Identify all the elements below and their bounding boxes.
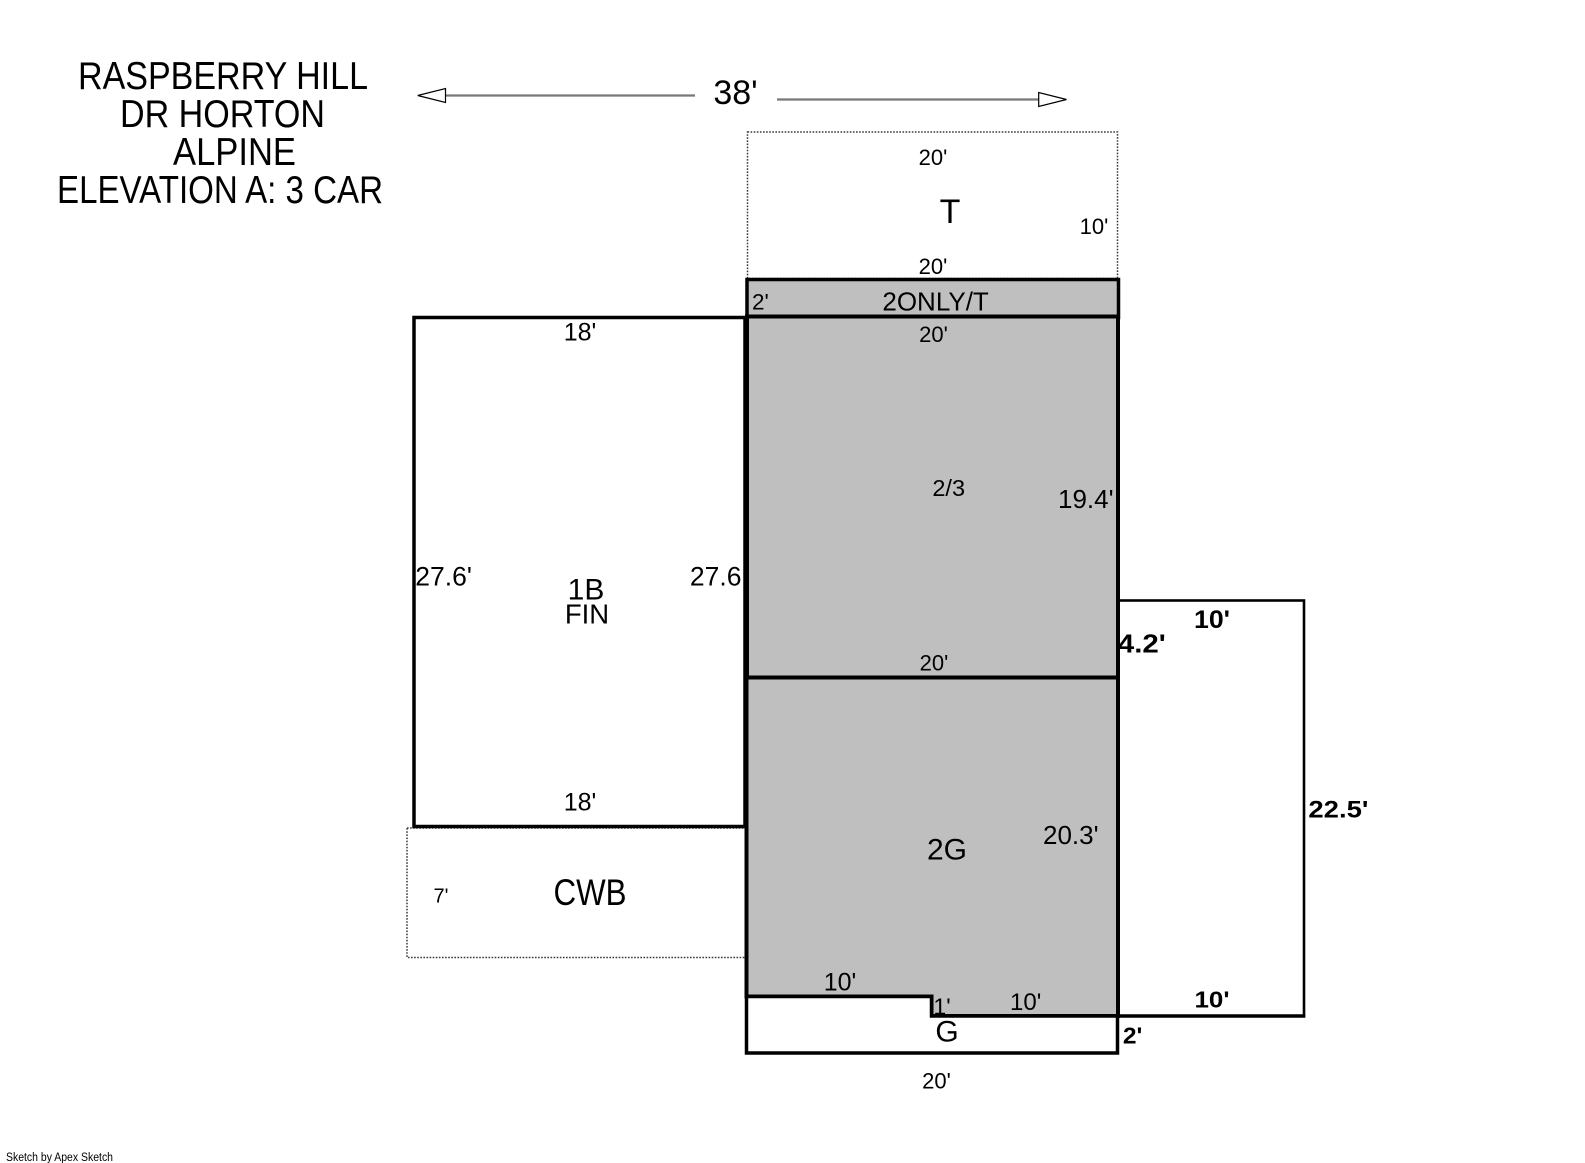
svg-text:27.6: 27.6 bbox=[690, 562, 742, 592]
svg-text:20.3': 20.3' bbox=[1043, 820, 1099, 850]
svg-text:2': 2' bbox=[1123, 1023, 1143, 1049]
svg-text:G: G bbox=[935, 1016, 958, 1049]
svg-text:18': 18' bbox=[564, 319, 597, 347]
svg-text:10': 10' bbox=[1194, 606, 1230, 634]
svg-text:ELEVATION A: 3 CAR: ELEVATION A: 3 CAR bbox=[57, 169, 383, 212]
svg-text:38': 38' bbox=[713, 74, 757, 112]
svg-text:4.2': 4.2' bbox=[1118, 629, 1166, 659]
svg-text:2': 2' bbox=[752, 290, 769, 315]
svg-text:27.6': 27.6' bbox=[415, 562, 472, 592]
svg-text:FIN: FIN bbox=[565, 599, 609, 630]
svg-text:10': 10' bbox=[1195, 987, 1230, 1013]
svg-text:10': 10' bbox=[824, 969, 857, 997]
svg-text:20': 20' bbox=[919, 322, 948, 347]
svg-text:20': 20' bbox=[919, 254, 948, 279]
svg-text:20': 20' bbox=[922, 1069, 951, 1094]
svg-text:CWB: CWB bbox=[554, 872, 627, 913]
svg-text:Sketch by Apex Sketch: Sketch by Apex Sketch bbox=[6, 1152, 113, 1163]
svg-text:T: T bbox=[940, 193, 961, 231]
svg-text:10': 10' bbox=[1010, 989, 1041, 1016]
svg-text:18': 18' bbox=[564, 789, 597, 817]
svg-text:2ONLY/T: 2ONLY/T bbox=[882, 287, 989, 317]
svg-text:20': 20' bbox=[920, 651, 949, 676]
svg-text:20': 20' bbox=[919, 145, 948, 170]
svg-text:RASPBERRY HILL: RASPBERRY HILL bbox=[78, 55, 368, 98]
svg-text:ALPINE: ALPINE bbox=[173, 131, 296, 174]
svg-text:22.5': 22.5' bbox=[1308, 797, 1368, 824]
svg-text:19.4': 19.4' bbox=[1058, 484, 1114, 514]
svg-text:7': 7' bbox=[434, 886, 449, 908]
svg-text:2G: 2G bbox=[927, 833, 967, 866]
svg-text:DR HORTON: DR HORTON bbox=[120, 93, 325, 136]
svg-text:2/3: 2/3 bbox=[932, 475, 965, 501]
svg-text:10': 10' bbox=[1080, 214, 1109, 239]
